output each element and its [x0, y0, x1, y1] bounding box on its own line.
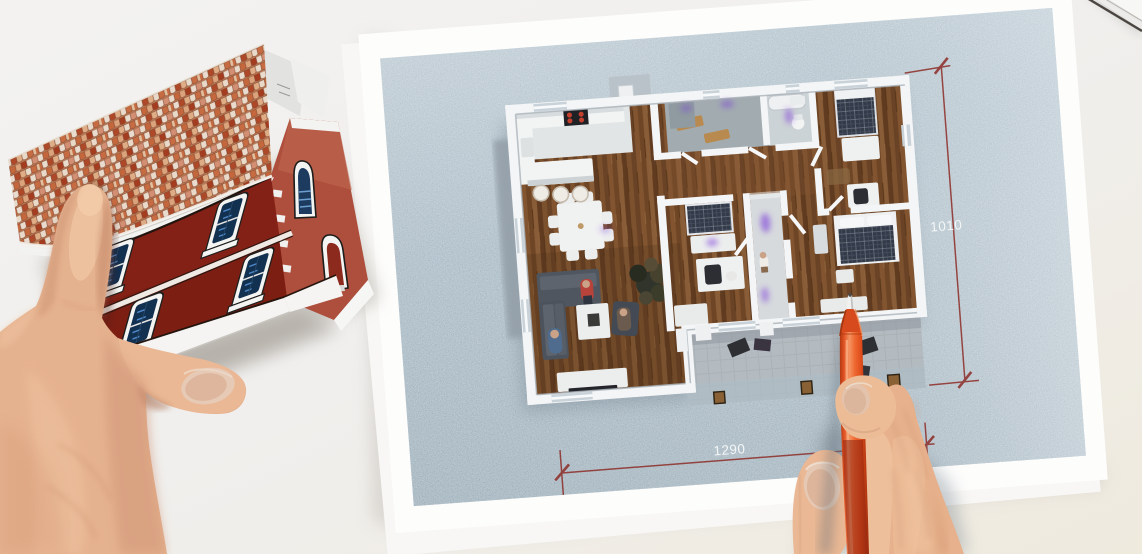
svg-text:1290: 1290	[713, 441, 746, 458]
svg-text:1010: 1010	[930, 217, 963, 234]
